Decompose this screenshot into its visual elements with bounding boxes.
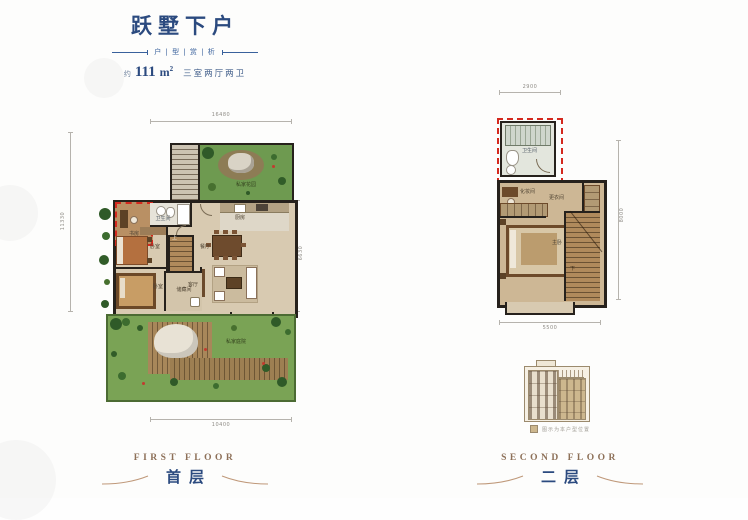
header: 跃墅下户 户 | 型 | 赏 | 析 约 111 m2 三室两厅两卫: [70, 10, 300, 81]
room-label-kitchen: 厨房: [220, 216, 260, 221]
washer: [190, 297, 200, 307]
sink: [506, 165, 516, 175]
room-label-bedroom-b: 卧室: [153, 285, 163, 290]
f2-main-body: 化妆间 更衣间 主卧 下: [497, 180, 607, 308]
armchair: [214, 267, 225, 277]
floorplan-page: 跃墅下户 户 | 型 | 赏 | 析 约 111 m2 三室两厅两卫 16480…: [0, 0, 748, 498]
room-label-garden: 私家花园: [200, 183, 292, 188]
master-bed: [506, 225, 570, 277]
dim-f2-bottom: 5500: [499, 325, 601, 331]
building-elevation: [520, 358, 592, 422]
closet: [500, 203, 548, 217]
dim-line: [70, 132, 71, 312]
stairs-down-label: 下: [570, 267, 575, 272]
area-row: 约 111 m2 三室两厅两卫: [70, 64, 300, 81]
elevation-legend: 图示为本户型位置: [530, 425, 590, 433]
dim-line: [150, 121, 292, 122]
dim-tick: [616, 299, 621, 300]
f1-storage: 储藏间: [164, 271, 202, 311]
sofa: [246, 267, 257, 299]
nightstand: [500, 219, 506, 225]
dim-tick: [616, 140, 621, 141]
swash-left: [101, 475, 149, 487]
f2-bathroom: 卫生间: [500, 121, 556, 177]
room-label-courtyard: 私家庭院: [226, 340, 246, 345]
area-about: 约: [124, 69, 131, 79]
dim-tick: [150, 119, 151, 124]
shower: [505, 125, 551, 146]
study-desk: [120, 210, 128, 228]
toilet: [506, 150, 519, 166]
bed-b: [116, 273, 156, 309]
garden-bushes: [202, 147, 214, 159]
door-arc: [536, 159, 550, 173]
vanity-table: [502, 187, 518, 197]
first-floor-en: FIRST FLOOR: [95, 453, 275, 463]
second-floor-en: SECOND FLOOR: [470, 453, 650, 463]
f2-bathroom-gift: 卫生间: [497, 118, 563, 184]
tv-cabinet: [202, 269, 205, 297]
pillows: [510, 230, 516, 268]
dining-chairs: [214, 230, 219, 234]
elevation-railing: [558, 370, 584, 378]
dim-f1-left: 11330: [60, 206, 66, 236]
area-spec: 三室两厅两卫: [183, 67, 246, 79]
wall-segment: [500, 216, 546, 218]
dining-table: [212, 235, 242, 257]
area-unit: m2: [160, 65, 174, 80]
kitchen-counter: [220, 203, 289, 213]
deck-path: [170, 358, 288, 380]
dim-tick: [68, 311, 73, 312]
door-arc: [200, 204, 212, 216]
nightstand: [500, 273, 506, 279]
legend-swatch: [530, 425, 538, 433]
armchair: [214, 291, 225, 301]
dim-tick: [499, 90, 500, 95]
kitchen-sink: [234, 204, 246, 213]
area-exponent: 2: [170, 65, 174, 73]
tagline-rule-left: [112, 50, 148, 55]
garden-flower: [272, 165, 275, 168]
room-label-master: 主卧: [552, 241, 562, 246]
f1-kitchen: 厨房: [220, 203, 289, 231]
courtyard-bushes: [110, 318, 122, 330]
study-chair: [130, 216, 138, 224]
stove: [256, 204, 268, 211]
room-label-living: 客厅: [188, 283, 198, 288]
room-label-storage: 储藏间: [166, 288, 202, 293]
dim-line: [499, 92, 561, 93]
room-label-f2-bathroom: 卫生间: [522, 149, 537, 154]
sink: [156, 206, 166, 216]
bed-a: [116, 236, 148, 265]
tagline-rule-right: [222, 50, 258, 55]
dim-f2-right: 8000: [619, 203, 625, 227]
room-label-vanity: 化妆间: [520, 190, 535, 195]
dim-f1-bottom: 10400: [150, 422, 292, 428]
f1-bathroom: 卫生间: [150, 203, 192, 227]
page-title: 跃墅下户: [70, 10, 300, 40]
dim-tick: [68, 132, 73, 133]
dim-line: [150, 419, 292, 420]
swash-left: [476, 475, 524, 487]
footer-first-floor: FIRST FLOOR 首层: [95, 453, 275, 487]
f1-courtyard: 私家庭院: [106, 314, 296, 402]
dim-tick: [291, 119, 292, 124]
dim-f1-right: 6630: [298, 240, 304, 266]
elevation-left-block: [528, 370, 558, 420]
wardrobe: [140, 227, 166, 235]
nightstand: [147, 258, 152, 263]
blanket: [521, 233, 557, 265]
tagline-text: 户 | 型 | 赏 | 析: [154, 47, 215, 57]
f2-stairs: [564, 211, 600, 301]
dim-line: [499, 322, 601, 323]
nightstand: [147, 237, 152, 242]
room-label-dining: 餐厅: [200, 245, 210, 250]
legend-text: 图示为本户型位置: [542, 426, 590, 433]
f1-garden: 私家花园: [198, 143, 294, 208]
swash-right: [221, 475, 269, 487]
bathtub: [177, 204, 190, 225]
side-trees: [99, 208, 111, 220]
f1-main-body: 书房 卫生间 厨房 卧室 卧室: [113, 200, 298, 318]
dim-f2-top: 2900: [499, 84, 561, 90]
room-label-bathroom: 卫生间: [150, 217, 176, 222]
watermark-blob: [0, 440, 56, 520]
room-label-cloakroom: 更衣间: [549, 196, 564, 201]
area-number: 111: [135, 64, 156, 81]
coffee-table: [226, 277, 242, 289]
room-label-bedroom-a: 卧室: [150, 245, 160, 250]
footer-second-floor: SECOND FLOOR 二层: [470, 453, 650, 487]
tagline-row: 户 | 型 | 赏 | 析: [70, 47, 300, 57]
stairs-divider: [570, 211, 603, 253]
tent: [154, 324, 198, 358]
dim-f1-top: 16480: [150, 112, 292, 118]
pillows: [120, 278, 125, 298]
f2-porch: [505, 302, 575, 315]
elevation-right-block: [558, 378, 586, 420]
dim-tick: [560, 90, 561, 95]
stairs-up-label: 上: [172, 236, 177, 241]
watermark-blob: [0, 185, 38, 241]
garden-rock: [228, 153, 254, 173]
pillows: [117, 237, 123, 264]
wall-segment: [116, 267, 166, 269]
courtyard-flowers: [204, 348, 207, 351]
swash-right: [596, 475, 644, 487]
